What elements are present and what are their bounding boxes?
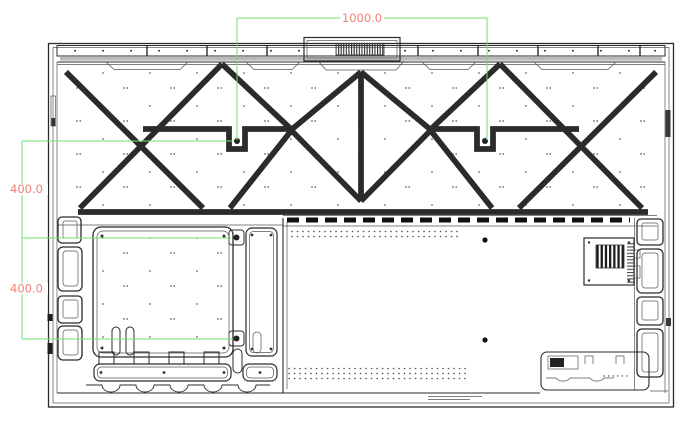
dimension-label-lower-400: 400.0 bbox=[10, 282, 43, 296]
vesa-hole-mid-left bbox=[234, 235, 240, 241]
rear-panel-technical-drawing: 1000.0 400.0 400.0 bbox=[0, 0, 700, 428]
scallop-edge bbox=[86, 385, 270, 392]
rail-joints bbox=[147, 46, 640, 57]
vent-dots-bottom bbox=[289, 369, 466, 379]
io-bay bbox=[283, 216, 668, 400]
vesa-hole-bottom-left bbox=[234, 336, 240, 342]
right-handle-brackets bbox=[637, 219, 663, 377]
bay-screw-top bbox=[482, 237, 487, 242]
lower-left-section bbox=[57, 225, 540, 393]
speaker-grille bbox=[336, 44, 384, 56]
right-edge-slot bbox=[666, 110, 671, 137]
bottom-tabs bbox=[99, 349, 242, 373]
rail-shadow-band bbox=[60, 57, 662, 61]
bay-sub-panel bbox=[541, 352, 649, 390]
module-bay-panel bbox=[93, 227, 233, 357]
bay-bottom-marks bbox=[428, 397, 482, 400]
drawing-canvas: 1000.0 400.0 400.0 bbox=[0, 0, 700, 428]
vent-dots-top bbox=[292, 232, 462, 237]
dimension-label-top: 1000.0 bbox=[342, 11, 382, 25]
cable-column bbox=[246, 228, 277, 356]
bay-screw-bottom bbox=[482, 337, 487, 342]
power-module bbox=[584, 238, 640, 285]
top-speaker-module bbox=[304, 38, 404, 71]
bottom-trim-bars bbox=[94, 364, 277, 381]
power-vent-grille bbox=[596, 245, 624, 268]
dimension-label-upper-400: 400.0 bbox=[10, 182, 43, 196]
